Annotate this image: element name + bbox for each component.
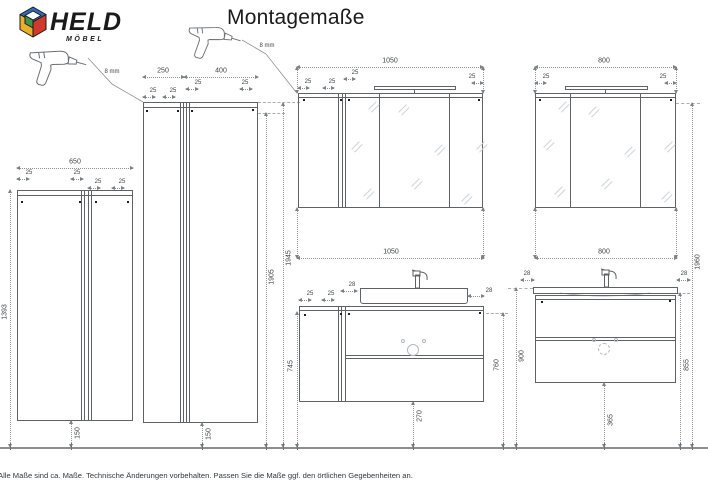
dim-label: 400 <box>215 68 227 75</box>
arrowhead <box>130 166 134 170</box>
dim-line-offset <box>298 88 309 89</box>
arrowhead <box>543 81 547 85</box>
cabinet-top-rail <box>535 97 676 98</box>
arrowhead <box>142 75 146 79</box>
cabinet-top-rail <box>143 107 258 108</box>
door-divider <box>186 102 187 423</box>
door-divider <box>570 93 571 208</box>
dim-label: 25 <box>95 179 102 185</box>
door-divider <box>345 93 346 208</box>
dim-line-offset <box>323 88 334 89</box>
mounting-dot <box>340 313 342 315</box>
mounting-dot <box>252 109 254 111</box>
dim-label: 25 <box>543 74 550 80</box>
arrowhead <box>481 207 485 211</box>
mounting-dot <box>479 312 481 314</box>
drawer-hole <box>614 338 618 342</box>
arrowhead <box>411 401 415 405</box>
dim-label: 25 <box>328 291 335 297</box>
light-fixture <box>374 86 456 90</box>
arrowhead <box>674 256 678 260</box>
floor-tick <box>283 443 284 450</box>
floor-tick <box>413 443 414 450</box>
arrowhead <box>481 294 485 298</box>
dim-label: 28 <box>349 282 356 288</box>
dim-line-offset <box>344 79 355 80</box>
floor-tick <box>10 443 11 450</box>
dim-line-wall-height <box>266 113 267 447</box>
arrowhead <box>322 86 326 90</box>
door-divider <box>189 102 190 423</box>
door-divider <box>91 190 92 421</box>
arrowhead <box>69 420 73 424</box>
door-divider <box>449 93 450 208</box>
arrowhead <box>249 87 253 91</box>
dim-label: 250 <box>157 68 169 75</box>
mounting-dot <box>146 110 148 112</box>
arrowhead <box>471 81 475 85</box>
arrowhead <box>308 298 312 302</box>
mounting-dot <box>670 99 672 101</box>
floor-tick <box>692 443 693 450</box>
extension-drop <box>483 208 484 258</box>
mounting-dot <box>21 201 23 203</box>
arrowhead <box>533 207 537 211</box>
dim-line-offset <box>240 89 252 90</box>
mounting-dot <box>669 300 671 302</box>
arrowhead <box>183 75 187 79</box>
dim-line-height <box>680 293 681 447</box>
floor-tick <box>680 443 681 450</box>
arrowhead <box>467 294 471 298</box>
arrowhead <box>16 177 20 181</box>
door-divider <box>338 306 339 402</box>
arrowhead <box>331 298 335 302</box>
dim-label: 25 <box>352 70 359 76</box>
drawer-divider <box>535 337 676 338</box>
dim-label: 25 <box>195 80 202 86</box>
mounting-dot <box>79 201 81 203</box>
floor-tick <box>297 443 298 450</box>
dim-label: 150 <box>75 427 82 439</box>
washbasin <box>360 288 468 304</box>
tall-cabinet-right-outline <box>143 102 258 423</box>
tall-cabinet-left-outline <box>17 190 133 421</box>
dim-label: 270 <box>417 410 424 422</box>
dim-line-offset <box>535 83 546 84</box>
cabinet-top-rail <box>17 195 133 196</box>
mounting-dot <box>478 99 480 101</box>
dim-label: 1393 <box>2 304 9 320</box>
faucet-icon <box>601 269 616 287</box>
mounting-dot <box>539 99 541 101</box>
floor-tick <box>503 443 504 450</box>
arrowhead <box>674 90 678 94</box>
mounting-dot <box>340 99 342 101</box>
siphon-cutout <box>407 344 419 356</box>
dim-line-offset <box>163 97 175 98</box>
door-divider <box>338 93 339 208</box>
drill-size-label: 8 mm <box>260 43 275 49</box>
dim-label: 25 <box>150 88 157 94</box>
floor-tick <box>202 443 203 450</box>
drawer-divider <box>345 358 483 359</box>
arrowhead <box>264 112 268 116</box>
mounting-dot <box>191 110 193 112</box>
dim-line-width <box>297 67 483 68</box>
dim-line-offset <box>299 300 311 301</box>
drawer-hole <box>592 338 596 342</box>
door-divider <box>180 102 181 423</box>
floor-line <box>0 447 708 449</box>
door-divider <box>640 93 641 208</box>
arrowhead <box>331 86 335 90</box>
dim-label: 25 <box>242 80 249 86</box>
dim-line-width <box>535 67 676 68</box>
extension-drop <box>297 67 298 93</box>
door-divider <box>379 93 380 208</box>
drill-icon <box>25 46 87 91</box>
arrowhead <box>16 166 20 170</box>
dim-line-width <box>17 168 133 169</box>
arrowhead <box>152 95 156 99</box>
vanity-small-outline <box>535 295 676 383</box>
arrowhead <box>690 102 694 106</box>
dim-label: 25 <box>469 74 476 80</box>
arrowhead <box>674 66 678 70</box>
dim-label: 745 <box>288 360 295 372</box>
dim-label: 1050 <box>383 249 399 256</box>
arrowhead <box>8 189 12 193</box>
door-divider <box>183 102 184 423</box>
arrowhead <box>534 256 538 260</box>
dim-line-width <box>184 77 258 78</box>
arrowhead <box>501 312 505 316</box>
drawer-hole <box>401 339 405 343</box>
cabinet-top-rail <box>299 310 484 311</box>
arrowhead <box>520 278 524 282</box>
arrowhead <box>531 278 535 282</box>
arrowhead <box>296 256 300 260</box>
dim-label: 1050 <box>382 58 398 65</box>
drill-size-label: 8 mm <box>105 69 120 75</box>
arrowhead <box>674 207 678 211</box>
arrowhead <box>121 186 125 190</box>
door-divider <box>345 306 346 402</box>
arrowhead <box>195 87 199 91</box>
dim-line-width <box>297 258 484 259</box>
dim-label: 25 <box>170 88 177 94</box>
vanity-large-outline <box>299 306 484 402</box>
arrowhead <box>664 81 668 85</box>
dim-label: 25 <box>119 179 126 185</box>
dim-label: 900 <box>519 350 526 362</box>
dim-label: 650 <box>69 159 81 166</box>
dim-line-offset <box>17 179 29 180</box>
dim-line-floor-gap <box>413 402 414 447</box>
arrowhead <box>111 186 115 190</box>
dim-line-width <box>143 77 184 78</box>
floor-tick <box>604 443 605 450</box>
door-divider <box>81 190 82 421</box>
arrowhead <box>306 86 310 90</box>
dim-label: 25 <box>307 291 314 297</box>
door-divider <box>342 93 343 208</box>
arrowhead <box>676 278 680 282</box>
arrowhead <box>162 95 166 99</box>
arrowhead <box>602 382 606 386</box>
dim-line-height <box>10 190 11 447</box>
faucet-icon <box>412 270 427 288</box>
arrowhead <box>678 292 682 296</box>
arrowhead <box>142 95 146 99</box>
arrowhead <box>80 177 84 181</box>
siphon-cutout <box>598 343 610 355</box>
dim-label: 25 <box>329 79 336 85</box>
dim-line-height <box>516 288 517 447</box>
arrowhead <box>295 311 299 315</box>
dim-label: 25 <box>660 74 667 80</box>
arrowhead <box>340 289 344 293</box>
arrowhead <box>352 77 356 81</box>
disclaimer-text: Alle Maße sind ca. Maße. Technische Ände… <box>0 471 413 480</box>
mounting-dot <box>348 99 350 101</box>
extension-drop <box>676 67 677 93</box>
mounting-dot <box>304 314 306 316</box>
dim-label: 365 <box>608 414 615 426</box>
floor-tick <box>71 443 72 450</box>
door-divider <box>341 306 342 402</box>
arrowhead <box>26 177 30 181</box>
arrowhead <box>200 422 204 426</box>
drawer-divider <box>535 340 676 341</box>
dim-line-offset <box>186 89 198 90</box>
mounting-dot <box>303 99 305 101</box>
dim-line-offset <box>71 179 83 180</box>
drill-leader-left <box>88 58 143 102</box>
extension-drop <box>483 67 484 93</box>
arrowhead <box>97 186 101 190</box>
dim-line-basin-offset <box>521 280 534 281</box>
arrowhead <box>172 95 176 99</box>
mounting-dot <box>127 201 129 203</box>
dim-line-basin-offset <box>341 291 357 292</box>
arrowhead <box>281 102 285 106</box>
drill-icon <box>184 22 242 65</box>
drawer-hole <box>422 339 426 343</box>
cabinet-top-rail <box>298 97 483 98</box>
dim-label: 28 <box>524 271 531 277</box>
dim-line-offset <box>322 300 334 301</box>
arrowhead <box>533 90 537 94</box>
dim-label: 25 <box>74 170 81 176</box>
dim-line-basin-offset <box>468 296 484 297</box>
arrowhead <box>481 256 485 260</box>
arrowhead <box>185 87 189 91</box>
dim-label: 25 <box>305 79 312 85</box>
dim-line-width <box>535 258 677 259</box>
dim-line-height <box>297 312 298 447</box>
dim-line-offset <box>112 188 124 189</box>
arrowhead <box>533 66 537 70</box>
extension-line <box>676 103 700 104</box>
mounting-dot <box>541 301 543 303</box>
arrowhead <box>295 90 299 94</box>
extension-line <box>258 102 300 103</box>
dim-line-offset <box>665 83 676 84</box>
dim-line-wall-height <box>283 103 284 447</box>
dim-label: 28 <box>681 271 688 277</box>
dim-line-floor-gap <box>604 383 605 447</box>
arrowhead <box>321 298 325 302</box>
arrowhead <box>255 75 259 79</box>
extension-drop <box>676 208 677 258</box>
arrowhead <box>298 298 302 302</box>
dim-label: 760 <box>494 359 501 371</box>
dim-label: 150 <box>206 428 213 440</box>
dim-line-offset <box>472 83 483 84</box>
mounting-dot <box>177 110 179 112</box>
dim-label: 1945 <box>286 250 293 266</box>
arrowhead <box>687 278 691 282</box>
dim-label: 1960 <box>695 254 702 270</box>
extension-drop <box>535 208 536 258</box>
washtop <box>533 287 678 294</box>
door-divider <box>84 190 85 421</box>
dim-label: 800 <box>598 58 610 65</box>
arrowhead <box>343 77 347 81</box>
dim-label: 800 <box>598 249 610 256</box>
door-divider <box>88 190 89 421</box>
arrowhead <box>239 87 243 91</box>
extension-drop <box>535 67 536 93</box>
extension-line <box>258 113 285 114</box>
dim-label: 1905 <box>269 269 276 285</box>
arrowhead <box>354 289 358 293</box>
cabinet-top-rail <box>535 299 676 300</box>
mounting-dot <box>95 201 97 203</box>
dim-label: 25 <box>26 170 33 176</box>
arrowhead <box>481 90 485 94</box>
arrowhead <box>87 186 91 190</box>
dim-line-basin-offset <box>677 280 690 281</box>
floor-tick <box>266 443 267 450</box>
dim-line-wall-height <box>692 103 693 447</box>
dim-line-height <box>503 313 504 447</box>
dim-label: 28 <box>486 288 493 294</box>
floor-tick <box>516 443 517 450</box>
montage-diagram: HELD MÖBEL Montagemaße <box>0 0 708 501</box>
mounting-dot <box>348 313 350 315</box>
extension-line <box>508 288 533 289</box>
dim-line-offset <box>143 97 155 98</box>
dim-line-offset <box>88 188 100 189</box>
arrowhead <box>295 207 299 211</box>
arrowhead <box>481 66 485 70</box>
light-fixture <box>565 86 648 90</box>
mirror-cabinet-large-outline <box>298 93 483 208</box>
arrowhead <box>70 177 74 181</box>
dim-label: 855 <box>684 359 691 371</box>
extension-drop <box>297 208 298 258</box>
arrowhead <box>295 66 299 70</box>
arrowhead <box>514 287 518 291</box>
